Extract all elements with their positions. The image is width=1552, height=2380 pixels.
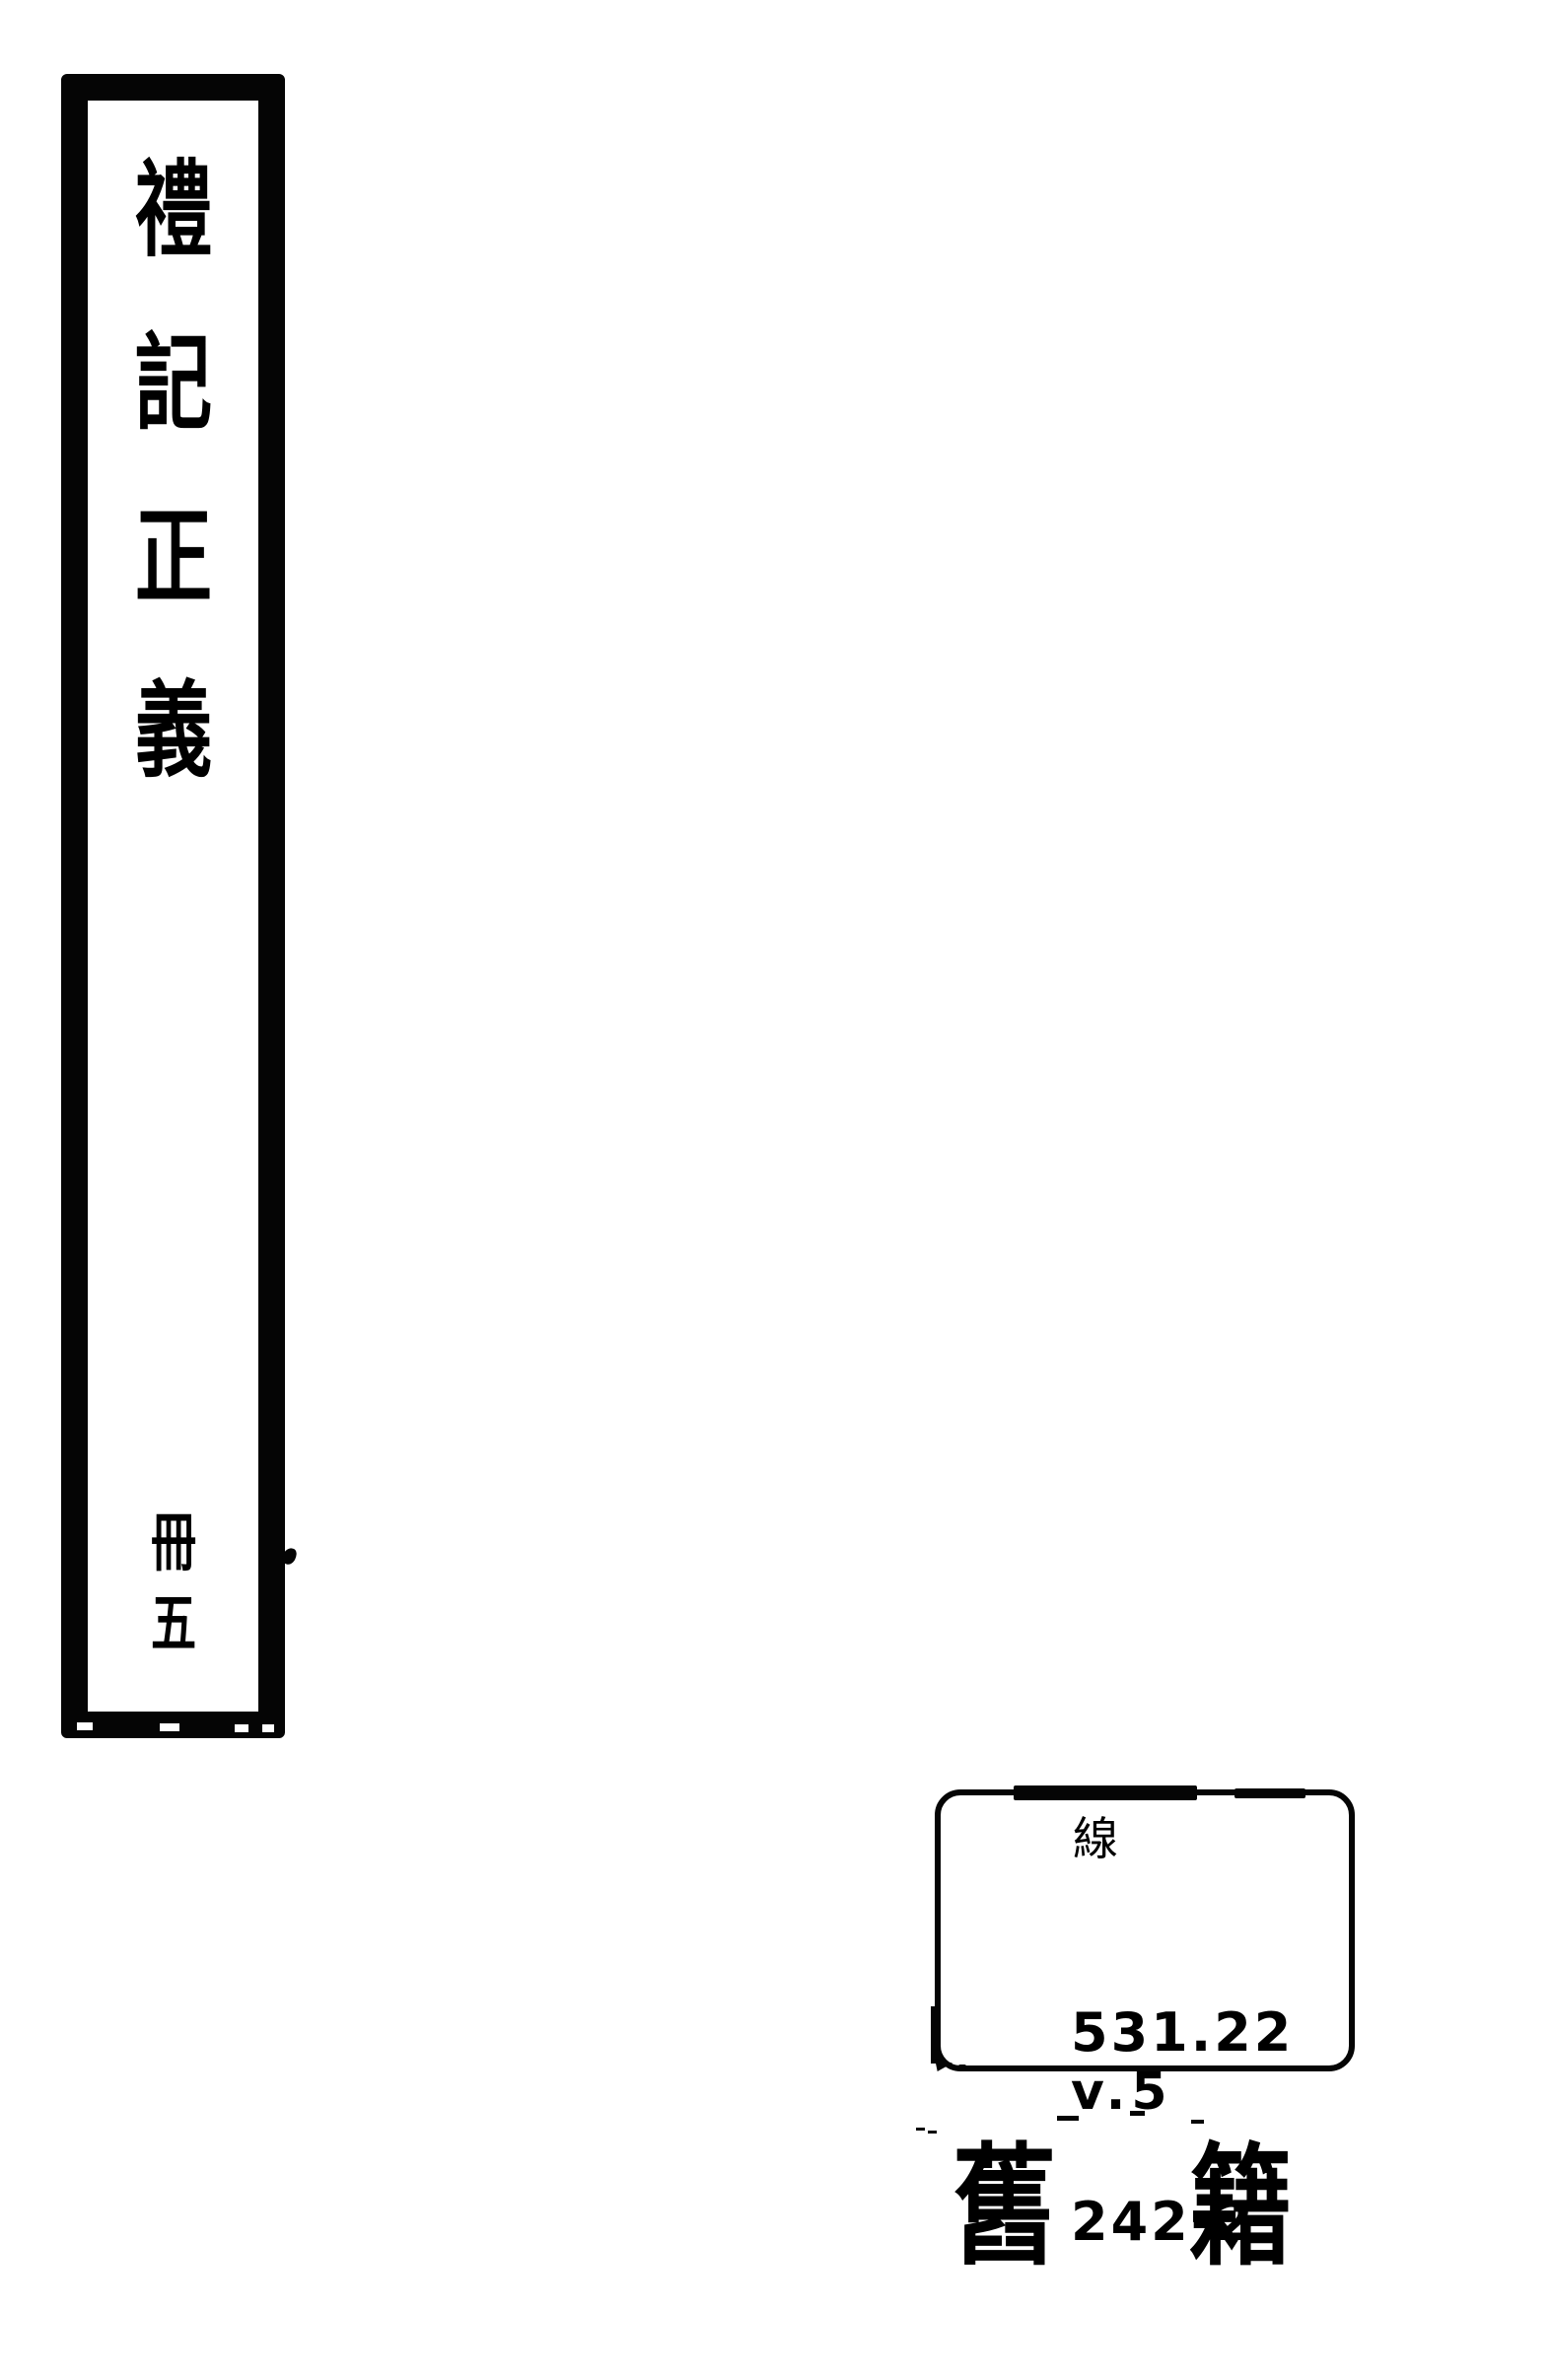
- scan-artifact-label-top-bar: [1235, 1788, 1305, 1798]
- scanned-book-cover-page: 禮 記 正 義 冊 五 線 531.22 242-2 25 v.5 舊 籍: [0, 0, 1552, 2380]
- volume-designation: v.5: [1071, 2066, 1173, 2118]
- call-number-lines: 531.22 242-2 25: [1071, 1875, 1294, 2380]
- call-number-line-1: 531.22: [1071, 2001, 1294, 2065]
- spine-volume-label: 冊 五: [88, 1512, 258, 1656]
- spine-title-char-1: 禮: [134, 158, 211, 262]
- classification-char: 線: [1073, 1816, 1118, 1861]
- old-books-stamp: 舊 籍: [952, 2141, 1315, 2268]
- scan-artifact-label-edge: [931, 2006, 941, 2064]
- spine-title-char-4: 義: [134, 678, 211, 783]
- scan-artifact-underscore: [1191, 2120, 1204, 2124]
- scan-artifact-underscore: [1130, 2111, 1145, 2116]
- scan-artifact-dash: [928, 2131, 937, 2134]
- scan-artifact-border-dash: [160, 1723, 179, 1731]
- scan-artifact-border-dash: [235, 1724, 248, 1732]
- scan-artifact-border-dash: [262, 1724, 274, 1732]
- spine-volume-char-2: 五: [150, 1593, 195, 1656]
- spine-volume-char-1: 冊: [150, 1512, 195, 1575]
- spine-title: 禮 記 正 義: [88, 158, 258, 783]
- scan-artifact-label-corner-dot: [958, 2065, 966, 2069]
- stamp-char-1: 舊: [952, 2141, 1056, 2273]
- scan-artifact-dash: [916, 2128, 925, 2131]
- spine-title-char-2: 記: [134, 331, 211, 436]
- scan-artifact-label-top-bar: [1014, 1785, 1197, 1800]
- book-spine-label-box: 禮 記 正 義 冊 五: [61, 74, 285, 1738]
- scan-artifact-underscore: [1057, 2116, 1079, 2121]
- scan-artifact-border-dash: [77, 1722, 93, 1730]
- stamp-char-2: 籍: [1189, 2141, 1293, 2273]
- spine-title-char-3: 正: [134, 505, 211, 609]
